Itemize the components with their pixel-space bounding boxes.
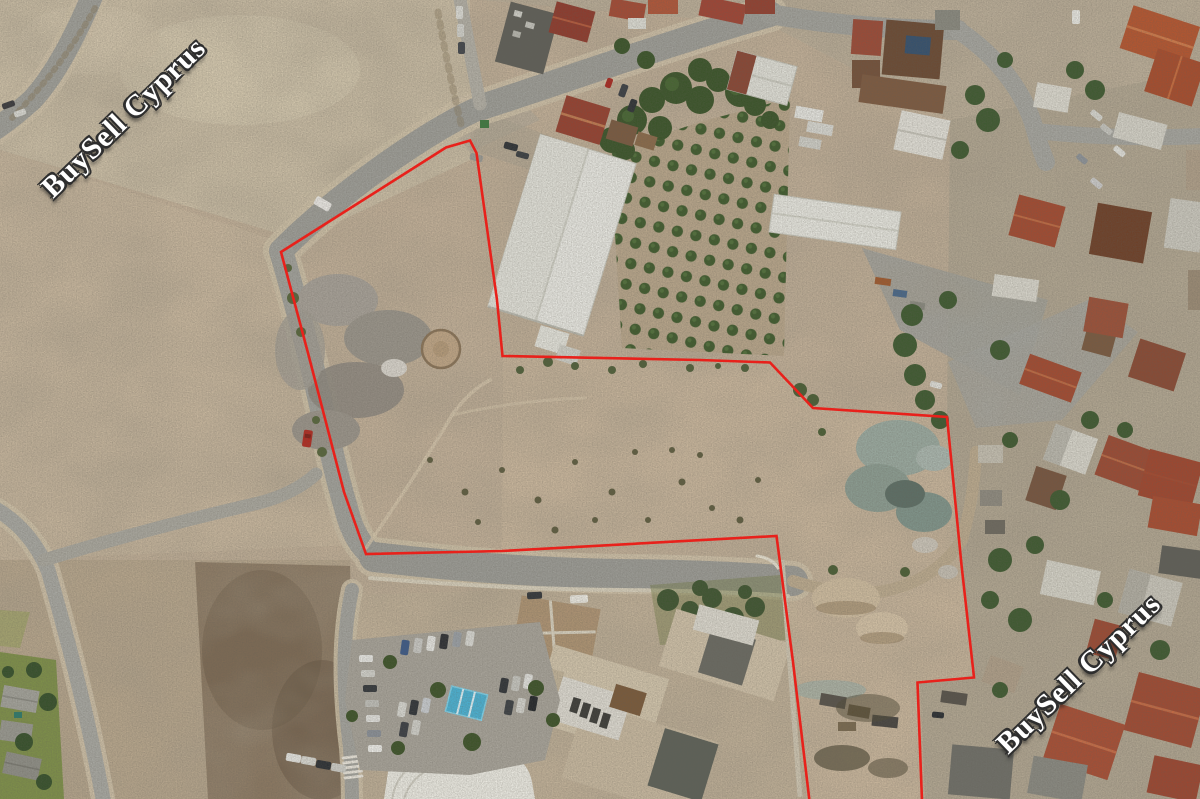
- aerial-photo: BuySell Cyprus BuySell Cyprus: [0, 0, 1200, 799]
- aerial-scene: [0, 0, 1200, 799]
- photo-grain: [0, 0, 1200, 799]
